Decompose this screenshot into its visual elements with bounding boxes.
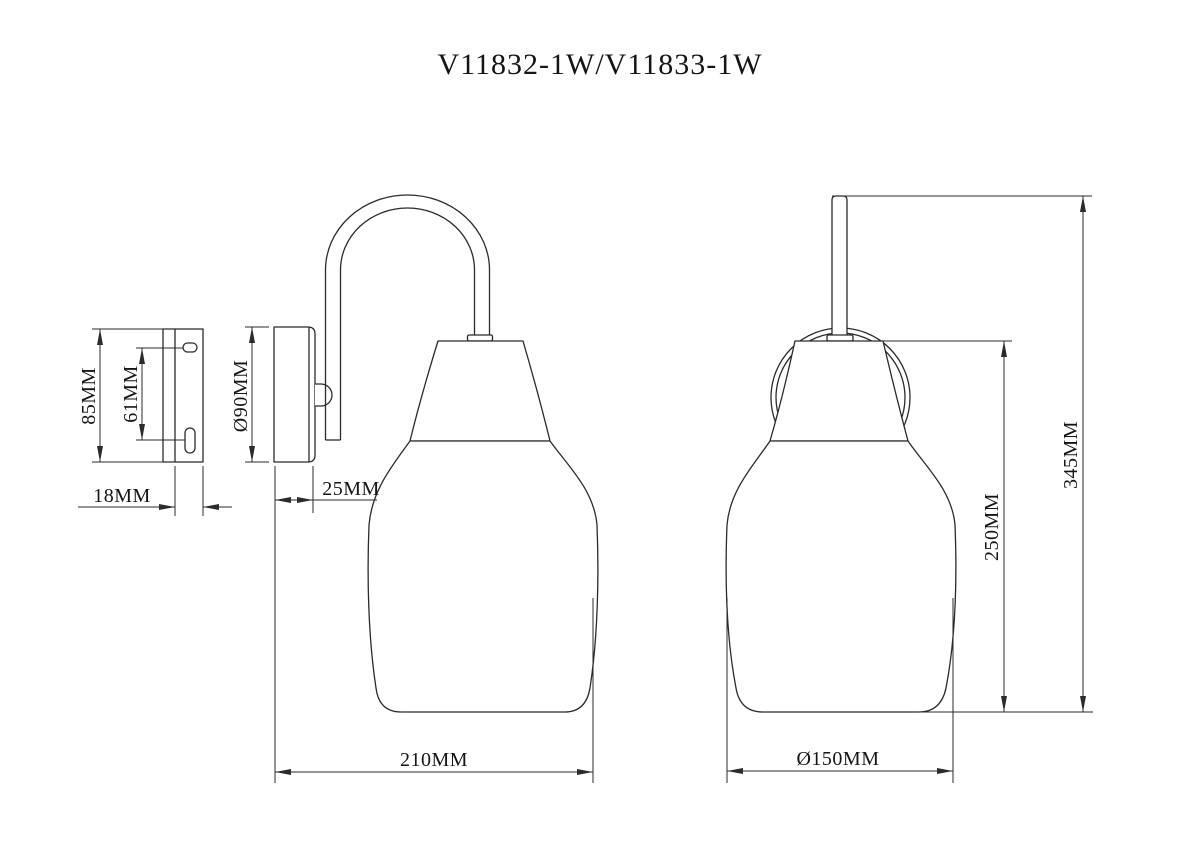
bracket-side-view: 85MM 61MM 18MM (78, 329, 232, 516)
lamp-side-view: Ø90MM 25MM 210MM (230, 195, 598, 783)
dim-label-projection: 210MM (400, 749, 468, 771)
dim-label-glass-diameter: Ø150MM (796, 748, 879, 770)
bracket-top-slot (183, 343, 197, 352)
dim-label-glass-height: 250MM (981, 493, 1003, 561)
glass-shade-front (726, 441, 956, 712)
arm-mount-boss (315, 384, 332, 406)
glass-shade-side (368, 441, 598, 712)
lamp-front-view: 345MM 250MM Ø150MM (726, 196, 1093, 783)
dim-label-plate-diameter: Ø90MM (230, 360, 252, 433)
dim-label-slot-spacing: 61MM (120, 365, 142, 423)
drawing-title: V11832-1W/V11833-1W (437, 48, 762, 81)
dim-label-bracket-height: 85MM (78, 367, 100, 425)
shade-cone (410, 341, 550, 441)
shade-collar-front (827, 335, 853, 341)
arm-rod-front (832, 196, 847, 340)
bracket-bottom-slot (185, 428, 195, 453)
dim-label-overall-height: 345MM (1060, 421, 1082, 489)
dim-label-bracket-depth: 18MM (93, 485, 151, 507)
dim-label-plate-depth: 25MM (322, 478, 380, 500)
shade-collar (468, 335, 493, 341)
wall-lamp-dimension-drawing: V11832-1W/V11833-1W 85MM 61MM 18MM (0, 0, 1200, 848)
technical-drawing-page: V11832-1W/V11833-1W 85MM 61MM 18MM (0, 0, 1200, 848)
